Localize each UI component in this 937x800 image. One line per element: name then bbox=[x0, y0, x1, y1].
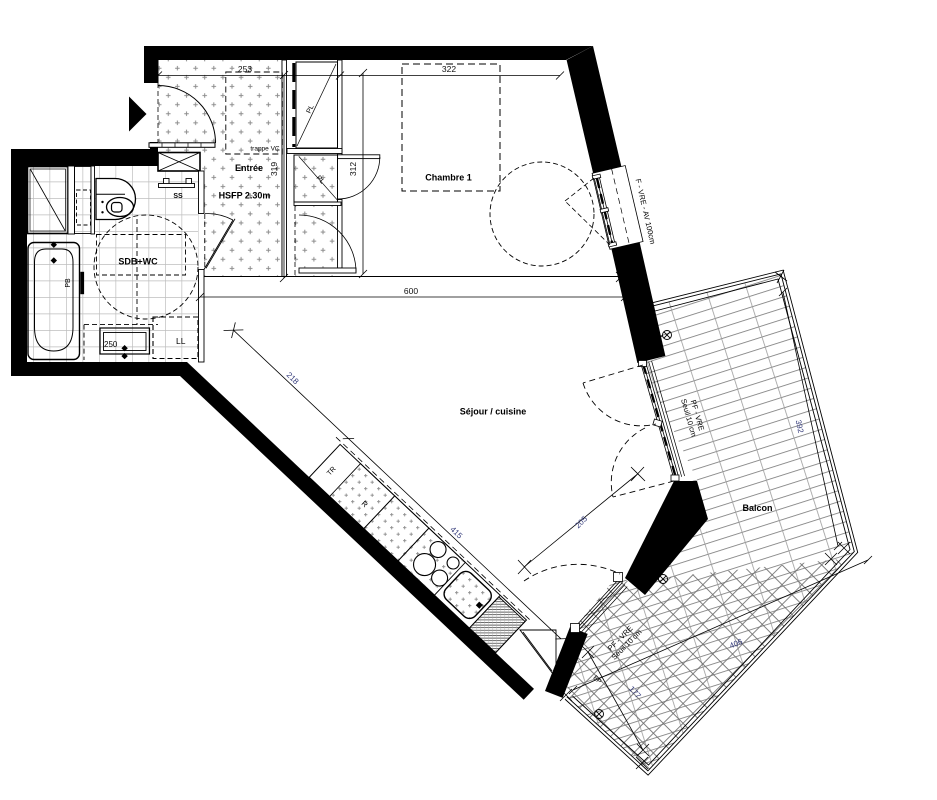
svg-text:253: 253 bbox=[238, 64, 252, 74]
svg-text:319: 319 bbox=[269, 162, 279, 176]
svg-text:Entrée: Entrée bbox=[235, 163, 263, 173]
svg-text:SS: SS bbox=[173, 193, 183, 200]
svg-text:HSFP 2.30m: HSFP 2.30m bbox=[219, 191, 271, 201]
svg-text:250: 250 bbox=[104, 340, 118, 349]
svg-text:600: 600 bbox=[404, 286, 418, 296]
svg-text:322: 322 bbox=[442, 64, 456, 74]
svg-text:Séjour / cuisine: Séjour / cuisine bbox=[460, 407, 527, 417]
svg-text:Balcon: Balcon bbox=[742, 503, 772, 513]
svg-text:trappe VC: trappe VC bbox=[250, 146, 280, 153]
svg-text:Chambre 1: Chambre 1 bbox=[425, 173, 472, 183]
svg-text:312: 312 bbox=[348, 162, 358, 176]
svg-text:SDB+WC: SDB+WC bbox=[118, 257, 158, 267]
svg-text:PB: PB bbox=[65, 278, 72, 288]
svg-text:LL: LL bbox=[176, 336, 186, 346]
